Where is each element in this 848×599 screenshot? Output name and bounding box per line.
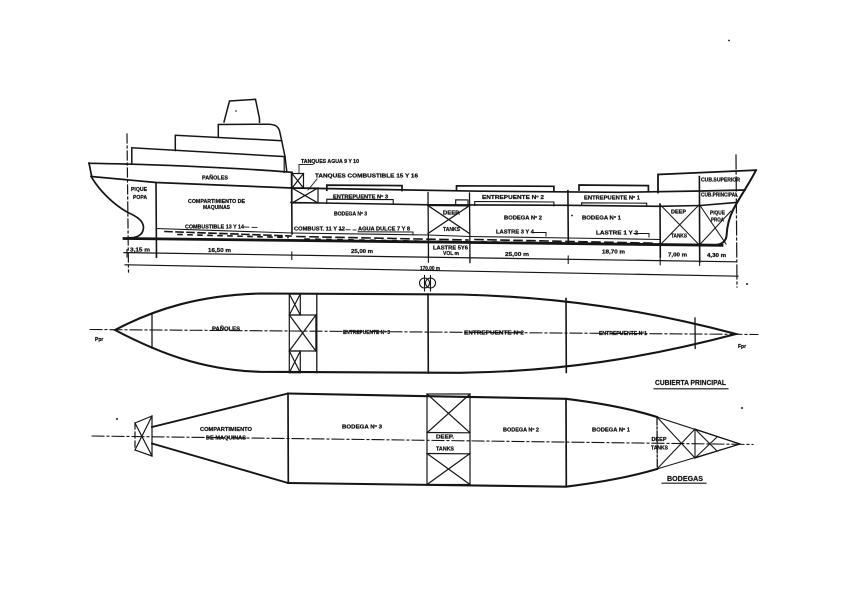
svg-text:BODEGA Nº 2: BODEGA Nº 2 [504,216,542,222]
svg-text:ENTREPUENTE Nº2: ENTREPUENTE Nº2 [464,330,524,336]
svg-text:3,15 m: 3,15 m [130,248,151,254]
svg-text:BODEGA Nº 1: BODEGA Nº 1 [592,428,630,434]
svg-text:DEEP: DEEP [671,210,687,216]
svg-text:ENTREPUENTE Nº 3: ENTREPUENTE Nº 3 [343,330,390,336]
svg-text:POPA: POPA [133,195,147,201]
svg-text:TANKS: TANKS [443,227,461,233]
svg-text:Ppr: Ppr [95,337,103,343]
svg-text:MAQUINAS: MAQUINAS [203,205,231,211]
svg-text:TANKS: TANKS [651,446,669,452]
svg-text:16,50 m: 16,50 m [208,248,232,254]
svg-text:PAÑOLES: PAÑOLES [202,175,228,182]
svg-text:CUBIERTA PRINCIPAL: CUBIERTA PRINCIPAL [655,378,726,387]
svg-text:BODEGA Nº 3: BODEGA Nº 3 [342,425,382,431]
svg-text:ENTREPUENTE Nº1: ENTREPUENTE Nº1 [599,331,647,337]
svg-text:COMBUST. 11 Y 12: COMBUST. 11 Y 12 [294,227,345,233]
svg-text:ENTREPUENTE Nº 3: ENTREPUENTE Nº 3 [333,195,388,201]
svg-text:BODEGA Nº 2: BODEGA Nº 2 [503,428,539,434]
svg-text:VOL m: VOL m [443,251,460,257]
svg-text:ENTREPUENTE Nº 1: ENTREPUENTE Nº 1 [584,196,640,202]
svg-text:Fpr: Fpr [738,344,746,350]
svg-text:DEEP.: DEEP. [443,211,461,217]
svg-text:COMPARTIMIENTO: COMPARTIMIENTO [200,427,252,433]
svg-text:BODEGAS: BODEGAS [667,474,703,483]
svg-text:DEEP: DEEP [652,437,668,443]
svg-text:18,70 m: 18,70 m [602,250,626,256]
svg-text:DE MAQUINAS: DE MAQUINAS [206,436,247,442]
svg-text:DEEP.: DEEP. [436,435,455,441]
svg-text:TANQUES COMBUSTIBLE 15 Y 16: TANQUES COMBUSTIBLE 15 Y 16 [315,174,418,180]
svg-text:PAÑOLES: PAÑOLES [212,326,241,333]
svg-text:25,00 m: 25,00 m [505,252,530,258]
svg-text:PROA: PROA [711,218,724,224]
svg-text:CUB.SUPERIOR: CUB.SUPERIOR [701,178,740,184]
svg-text:BODEGA Nº 1: BODEGA Nº 1 [582,216,621,222]
svg-text:25,00 m: 25,00 m [351,249,374,255]
svg-text:PIQUE: PIQUE [710,211,726,217]
svg-text:ENTREPUENTE Nº 2: ENTREPUENTE Nº 2 [482,195,544,201]
svg-text:BODEGA Nº 3: BODEGA Nº 3 [334,212,367,218]
svg-text:7,00 m: 7,00 m [668,253,688,259]
svg-text:4,30 m: 4,30 m [707,253,727,259]
svg-text:LASTRE 1 Y 2: LASTRE 1 Y 2 [596,231,638,237]
svg-text:TANKS: TANKS [436,447,455,453]
svg-text:CUB.PRINCIPAL: CUB.PRINCIPAL [701,193,738,199]
svg-text:LASTRE 3 Y 4: LASTRE 3 Y 4 [496,230,534,236]
svg-text:PIQUE: PIQUE [131,187,148,193]
svg-text:TANKS: TANKS [671,234,688,240]
svg-text:170,00 m: 170,00 m [420,266,441,272]
